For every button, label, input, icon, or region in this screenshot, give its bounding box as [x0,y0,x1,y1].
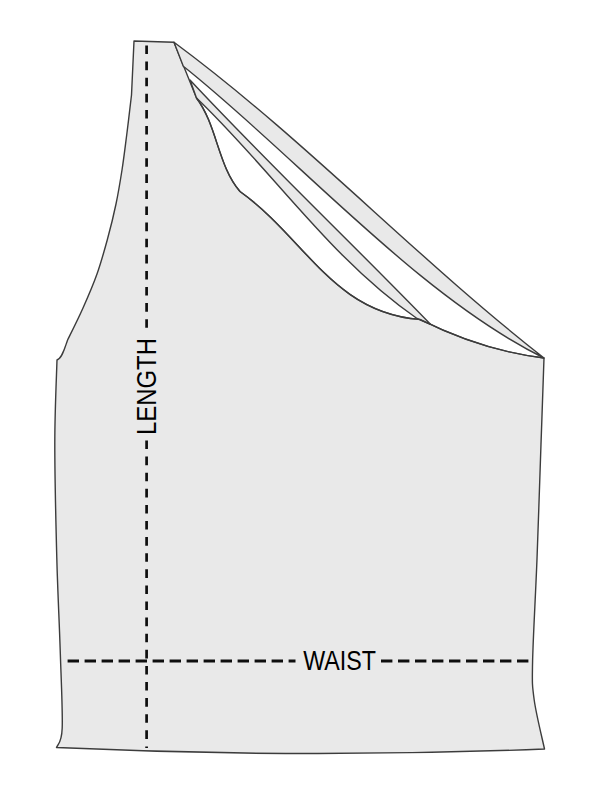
svg-text:LENGTH: LENGTH [131,338,162,435]
svg-text:WAIST: WAIST [303,645,376,676]
